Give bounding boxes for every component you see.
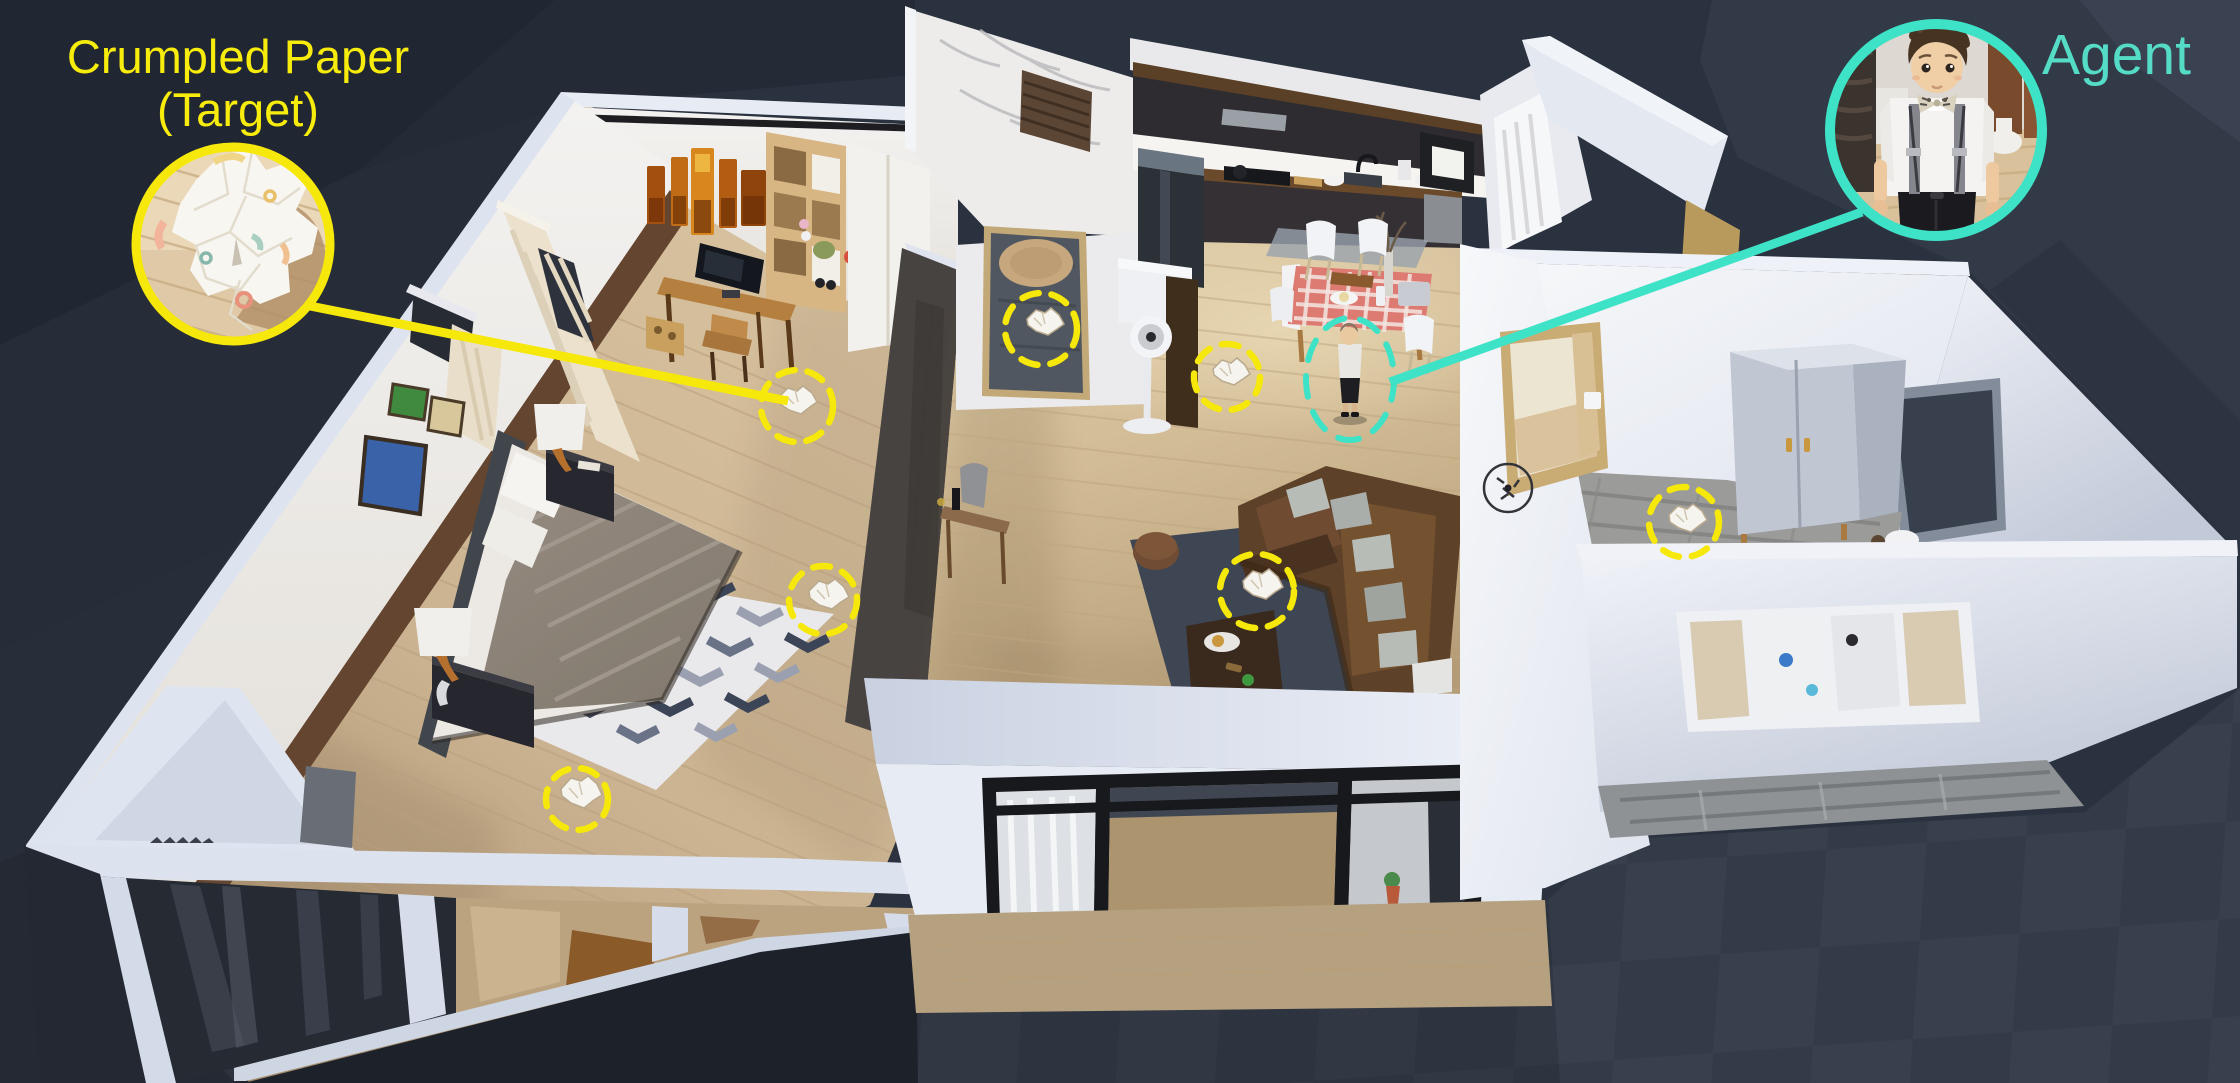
svg-text:Agent: Agent (2042, 23, 2191, 87)
svg-text:Crumpled Paper: Crumpled Paper (67, 30, 409, 83)
svg-text:(Target): (Target) (157, 83, 319, 136)
